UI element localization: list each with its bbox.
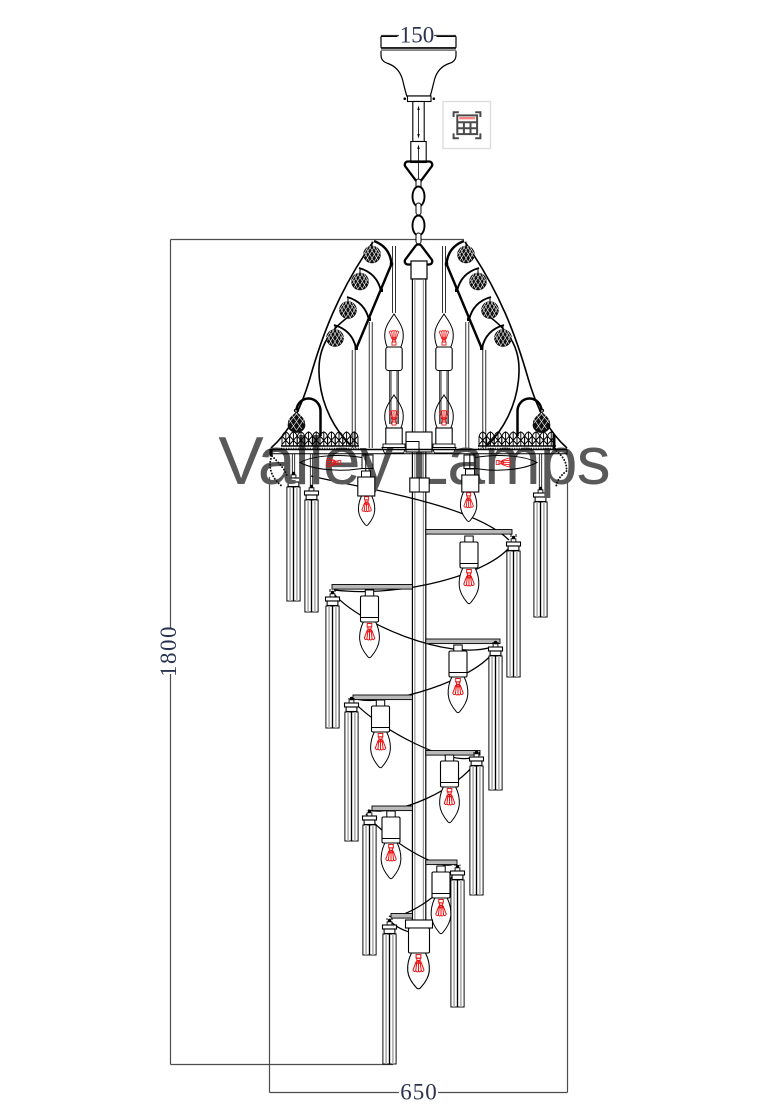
svg-text:650: 650 [400,1080,438,1105]
svg-text:150: 150 [400,23,435,48]
svg-text:1800: 1800 [156,625,181,677]
